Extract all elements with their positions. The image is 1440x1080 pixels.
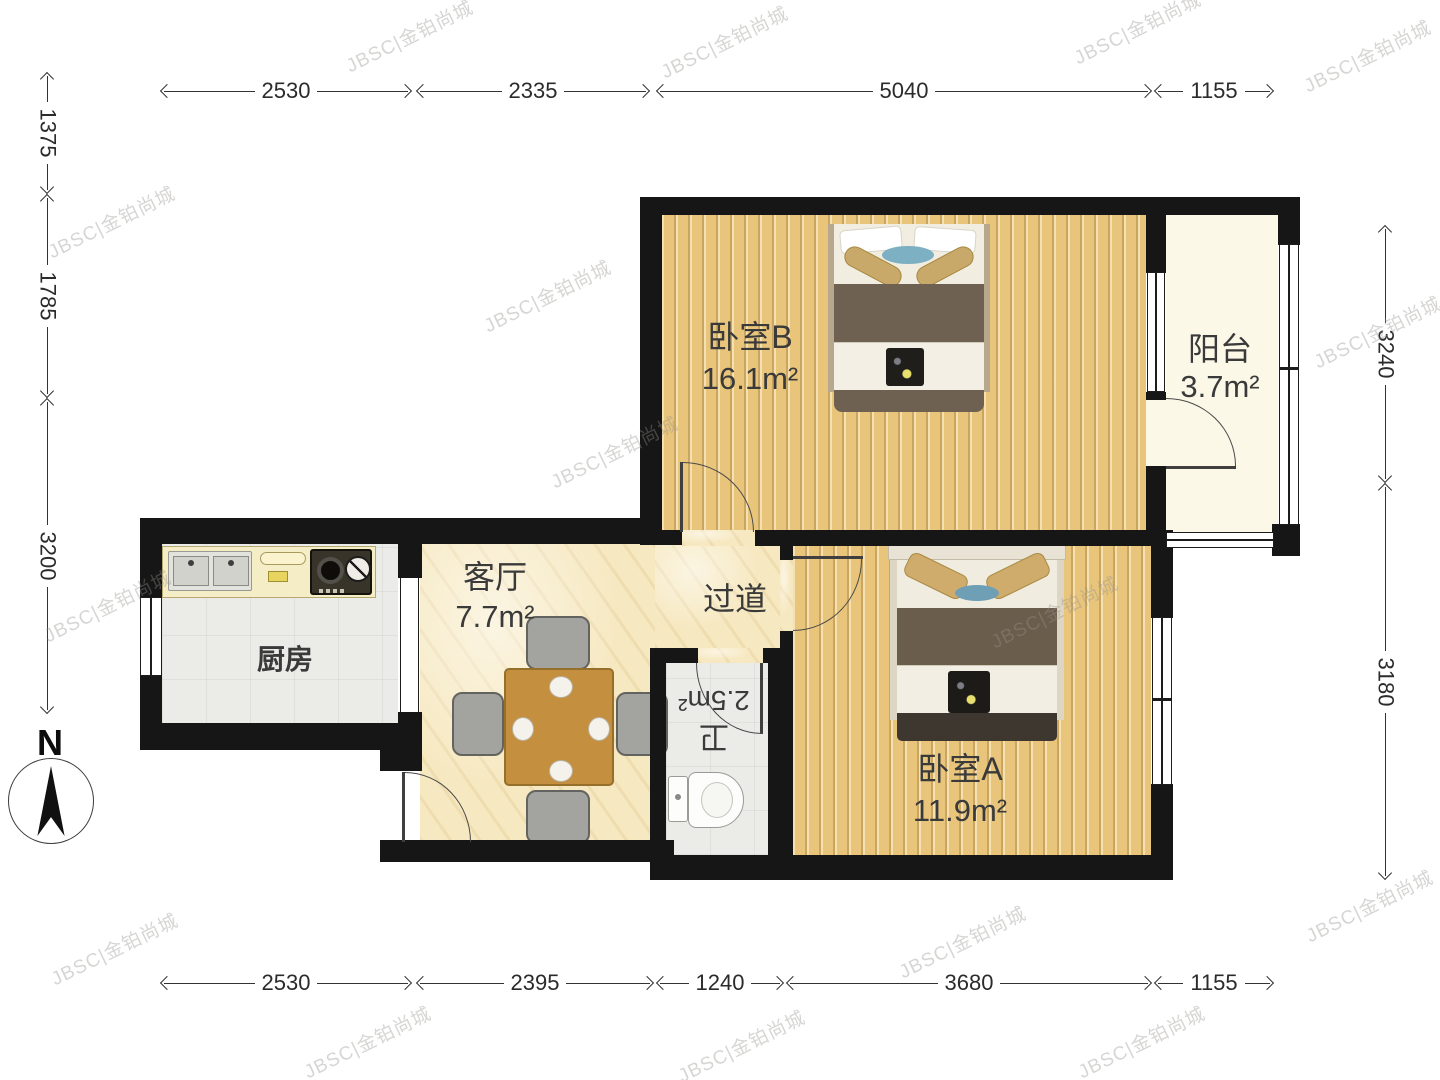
stove-knobs xyxy=(319,589,347,593)
dim-line xyxy=(1000,983,1148,984)
room-label-bedroom-b: 卧室B xyxy=(655,320,845,355)
door-leaf xyxy=(1166,466,1236,469)
bed-rail xyxy=(984,224,990,392)
dim-label: 2530 xyxy=(255,80,318,102)
arrow-up-icon xyxy=(1378,225,1392,239)
room-label-living: 客厅 xyxy=(430,560,560,595)
dim-label: 2530 xyxy=(255,972,318,994)
bed-rail xyxy=(890,560,897,720)
cushion xyxy=(882,246,934,264)
room-area-bedroom-a: 11.9m² xyxy=(865,794,1055,828)
bed-a xyxy=(888,545,1066,745)
chair xyxy=(526,790,590,844)
arrow-down-icon xyxy=(1378,866,1392,880)
dim-line xyxy=(420,91,502,92)
arrow-up-icon xyxy=(40,194,54,208)
dim-line xyxy=(164,983,255,984)
dim-label: 1240 xyxy=(689,972,752,994)
faucet xyxy=(188,560,194,566)
dim-label: 3200 xyxy=(36,532,58,581)
watermark: JBSC|金铂尚城 xyxy=(479,253,615,338)
arrow-right-icon xyxy=(398,84,412,98)
dim-label: 1155 xyxy=(1183,972,1244,994)
bed-foot xyxy=(834,390,984,412)
room-label-balcony: 阳台 xyxy=(1155,332,1285,367)
watermark: JBSC|金铂尚城 xyxy=(673,1003,809,1080)
burner xyxy=(317,557,344,584)
wall xyxy=(380,840,674,862)
arrow-left-icon xyxy=(656,976,670,990)
arrow-up-icon xyxy=(40,398,54,412)
room-label-bath: 卫 xyxy=(662,720,766,753)
dim-label: 3180 xyxy=(1374,657,1396,706)
dining-table xyxy=(504,668,614,786)
dim-label: 3240 xyxy=(1374,330,1396,379)
watermark: JBSC|金铂尚城 xyxy=(43,179,179,264)
appliance-small xyxy=(268,571,288,582)
dim-bottom-3: 1240 xyxy=(658,972,782,994)
threshold xyxy=(682,530,755,546)
dim-label: 5040 xyxy=(873,80,936,102)
bed-b xyxy=(828,224,990,412)
arrow-right-icon xyxy=(636,84,650,98)
balcony-rail-window xyxy=(1166,532,1274,548)
room-label-kitchen: 厨房 xyxy=(225,645,345,676)
kitchen-doorway xyxy=(400,578,419,712)
arrow-down-icon xyxy=(40,180,54,194)
arrow-left-icon xyxy=(656,84,670,98)
window-divider xyxy=(1152,698,1172,701)
watermark: JBSC|金铂尚城 xyxy=(341,0,477,78)
duvet xyxy=(897,608,1057,670)
dim-line xyxy=(660,91,873,92)
duvet xyxy=(834,284,984,344)
arrow-down-icon xyxy=(40,700,54,714)
watermark: JBSC|金铂尚城 xyxy=(1073,999,1209,1080)
plate xyxy=(549,676,573,698)
threshold xyxy=(698,648,763,663)
watermark: JBSC|金铂尚城 xyxy=(656,0,792,84)
threshold xyxy=(1146,399,1166,466)
faucet xyxy=(228,560,234,566)
toilet-bowl xyxy=(688,772,744,828)
arrow-right-icon xyxy=(1138,976,1152,990)
arrow-left-icon xyxy=(1154,976,1168,990)
dim-line xyxy=(566,983,650,984)
dim-line xyxy=(1385,385,1386,479)
watermark: JBSC|金铂尚城 xyxy=(1299,13,1435,98)
dim-bottom-5: 1155 xyxy=(1156,972,1272,994)
dim-label: 2395 xyxy=(504,972,567,994)
wall xyxy=(1272,524,1300,556)
wall xyxy=(1146,215,1166,273)
arrow-left-icon xyxy=(160,84,174,98)
room-label-hallway: 过道 xyxy=(675,582,795,617)
bed-blanket-square xyxy=(948,671,990,713)
arrow-right-icon xyxy=(640,976,654,990)
dim-line xyxy=(317,983,408,984)
arrow-left-icon xyxy=(416,976,430,990)
stove xyxy=(310,549,372,595)
dim-right-1: 3240 xyxy=(1374,227,1396,481)
room-label-bedroom-a: 卧室A xyxy=(865,752,1055,787)
toilet-bowl-inner xyxy=(701,782,733,818)
dim-left-1: 1375 xyxy=(36,74,58,192)
wall xyxy=(780,546,793,560)
plate xyxy=(588,717,610,741)
wall xyxy=(640,530,682,545)
arrow-left-icon xyxy=(160,976,174,990)
dim-line xyxy=(164,91,255,92)
arrow-up-icon xyxy=(40,72,54,86)
arrow-left-icon xyxy=(416,84,430,98)
dim-line xyxy=(1385,229,1386,323)
room-area-bath: 2.5m² xyxy=(662,684,766,715)
floor-plan: 卧室B 16.1m² 阳台 3.7m² 客厅 7.7m² 过道 厨房 2.5m²… xyxy=(0,0,1440,1080)
arrow-left-icon xyxy=(786,976,800,990)
arrow-down-icon xyxy=(1378,469,1392,483)
wall xyxy=(398,712,422,771)
room-area-bedroom-b: 16.1m² xyxy=(655,362,845,396)
room-area-living: 7.7m² xyxy=(425,600,565,634)
plate xyxy=(512,717,534,741)
dim-top-1: 2530 xyxy=(162,80,410,102)
dim-left-3: 3200 xyxy=(36,400,58,712)
kitchen-window xyxy=(140,597,162,676)
dim-right-2: 3180 xyxy=(1374,485,1396,878)
bed-rail xyxy=(1057,560,1064,720)
bed-blanket-square xyxy=(886,348,924,386)
wall xyxy=(140,518,162,598)
cushion xyxy=(955,585,999,601)
arrow-right-icon xyxy=(398,976,412,990)
dim-line xyxy=(1385,713,1386,877)
room-area-balcony: 3.7m² xyxy=(1155,370,1285,404)
wall xyxy=(1146,466,1166,546)
dim-line xyxy=(420,983,504,984)
wall xyxy=(140,723,402,750)
dining-set xyxy=(450,614,670,844)
dim-bottom-1: 2530 xyxy=(162,972,410,994)
dim-line xyxy=(564,91,646,92)
dim-top-2: 2335 xyxy=(418,80,648,102)
dim-bottom-4: 3680 xyxy=(788,972,1150,994)
dim-line xyxy=(317,91,408,92)
bedroom-a-window xyxy=(1152,617,1172,785)
bed-foot xyxy=(897,713,1057,741)
arrow-left-icon xyxy=(1154,84,1168,98)
dim-left-2: 1785 xyxy=(36,196,58,396)
arrow-right-icon xyxy=(770,976,784,990)
wall xyxy=(1151,546,1173,618)
dim-label: 1155 xyxy=(1183,80,1244,102)
dim-top-3: 5040 xyxy=(658,80,1150,102)
dim-line xyxy=(1385,487,1386,651)
wall xyxy=(398,544,422,578)
wall xyxy=(640,197,1300,215)
dim-line xyxy=(935,91,1148,92)
wall xyxy=(755,530,1173,546)
dim-top-4: 1155 xyxy=(1156,80,1272,102)
kitchen-counter xyxy=(162,546,376,598)
arrow-up-icon xyxy=(1378,483,1392,497)
arrow-right-icon xyxy=(1260,976,1274,990)
dim-line xyxy=(47,402,48,525)
watermark: JBSC|金铂尚城 xyxy=(1069,0,1205,70)
dim-bottom-2: 2395 xyxy=(418,972,652,994)
plate xyxy=(549,760,573,782)
chair xyxy=(452,692,504,756)
dim-line xyxy=(790,983,938,984)
wall xyxy=(1278,197,1300,245)
wall xyxy=(768,663,786,855)
dim-label: 1785 xyxy=(36,272,58,321)
pan xyxy=(345,556,371,582)
arrow-down-icon xyxy=(40,384,54,398)
toilet xyxy=(668,770,748,830)
arrow-right-icon xyxy=(1260,84,1274,98)
flush-button xyxy=(675,794,681,800)
dim-line xyxy=(47,587,48,710)
dim-label: 1375 xyxy=(36,109,58,158)
wall xyxy=(650,648,698,663)
wall xyxy=(763,648,793,663)
dim-label: 2335 xyxy=(502,80,565,102)
wall xyxy=(650,855,1173,880)
dim-label: 3680 xyxy=(938,972,1001,994)
sink-unit xyxy=(168,551,252,591)
appliance xyxy=(260,552,306,565)
arrow-right-icon xyxy=(1138,84,1152,98)
wall xyxy=(140,518,662,544)
watermark: JBSC|金铂尚城 xyxy=(299,999,435,1080)
wall xyxy=(1151,784,1173,880)
watermark: JBSC|金铂尚城 xyxy=(1301,863,1437,948)
